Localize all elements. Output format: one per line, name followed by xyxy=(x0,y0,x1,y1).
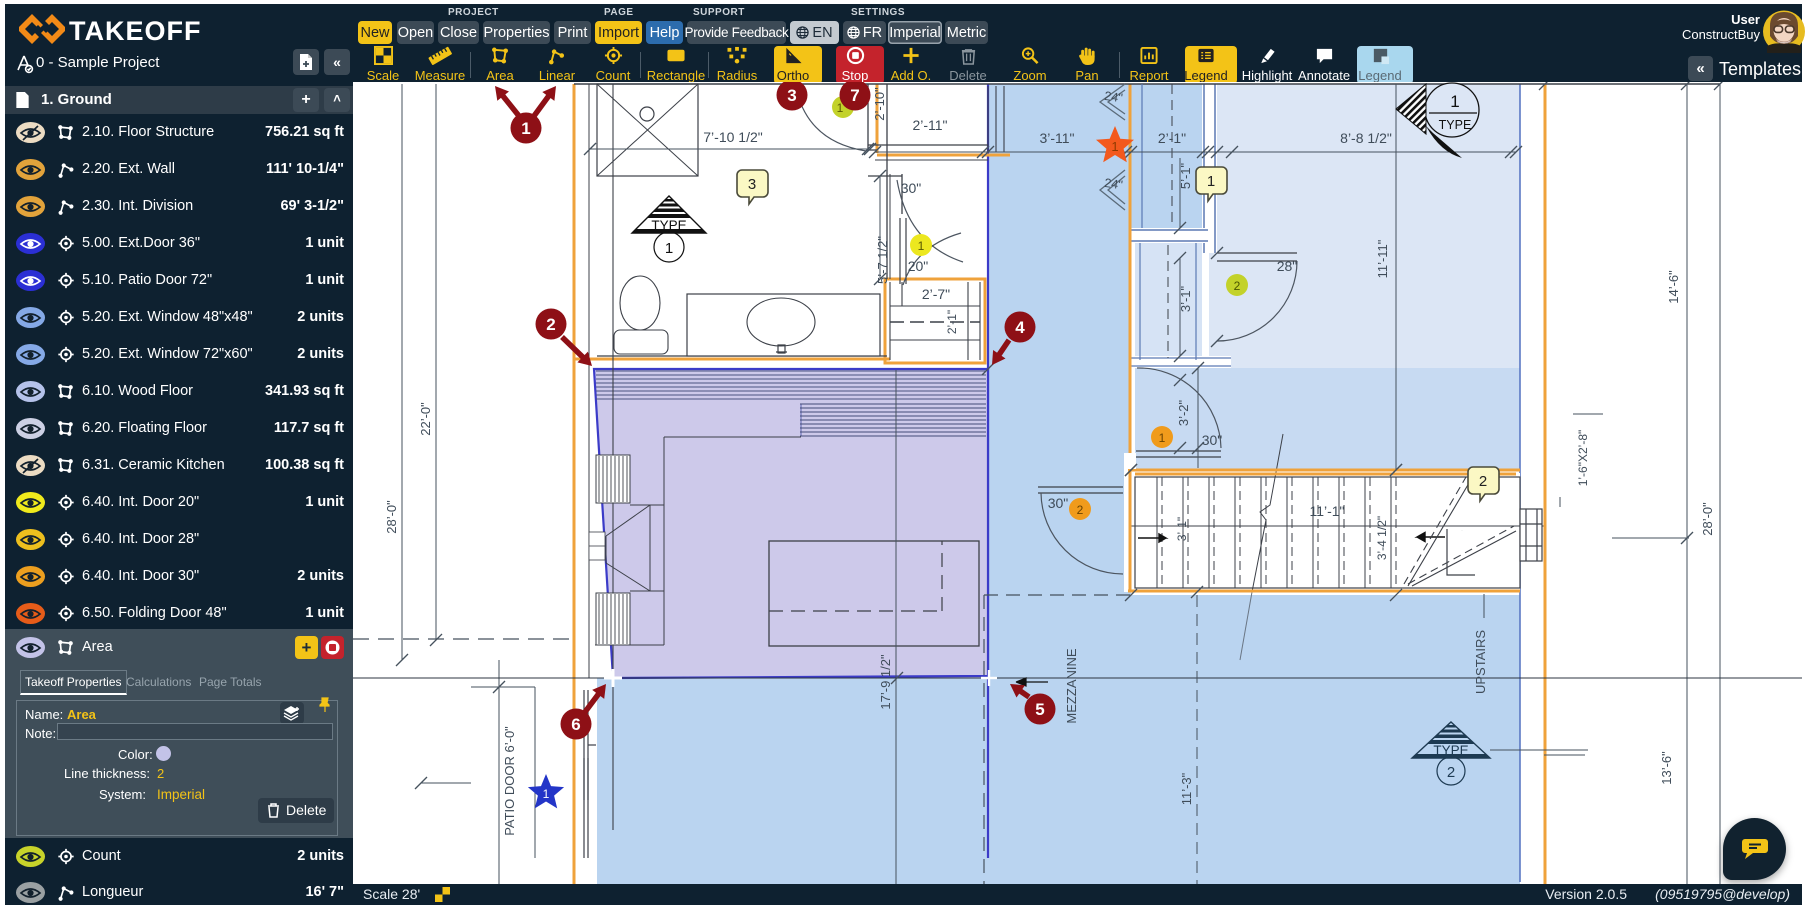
svg-text:3’-1": 3’-1" xyxy=(1178,285,1193,312)
svg-text:TYPE: TYPE xyxy=(1439,118,1472,132)
svg-text:2: 2 xyxy=(1077,503,1084,517)
svg-text:2: 2 xyxy=(546,315,555,334)
svg-text:1: 1 xyxy=(918,239,925,253)
svg-text:24": 24" xyxy=(1103,176,1123,192)
svg-text:3: 3 xyxy=(748,176,756,193)
svg-text:2’-7": 2’-7" xyxy=(922,286,950,302)
svg-text:11’-1": 11’-1" xyxy=(1309,503,1344,519)
svg-text:PATIO DOOR 6’-0": PATIO DOOR 6’-0" xyxy=(502,726,517,836)
svg-text:8’-8 1/2": 8’-8 1/2" xyxy=(1340,130,1392,146)
svg-text:30": 30" xyxy=(1202,432,1223,448)
svg-text:30": 30" xyxy=(901,180,922,196)
svg-text:2’-1": 2’-1" xyxy=(945,310,959,334)
svg-text:1’-6"X2’-8": 1’-6"X2’-8" xyxy=(1576,430,1590,487)
svg-text:28’-0": 28’-0" xyxy=(384,500,399,534)
svg-text:1: 1 xyxy=(665,240,673,257)
svg-text:1: 1 xyxy=(1159,431,1166,445)
svg-text:7’-10 1/2": 7’-10 1/2" xyxy=(703,129,762,145)
svg-text:17’-9 1/2": 17’-9 1/2" xyxy=(878,654,893,710)
svg-text:6: 6 xyxy=(571,715,580,734)
svg-text:1: 1 xyxy=(1207,173,1215,190)
svg-text:1: 1 xyxy=(521,119,530,138)
svg-text:13’-6": 13’-6" xyxy=(1659,751,1674,785)
svg-text:5’-1": 5’-1" xyxy=(1178,162,1193,189)
svg-text:MEZZANINE: MEZZANINE xyxy=(1064,648,1079,723)
svg-text:24": 24" xyxy=(1103,89,1123,105)
svg-text:3’-4 1/2": 3’-4 1/2" xyxy=(1375,516,1389,560)
svg-text:7: 7 xyxy=(850,86,859,105)
svg-text:4: 4 xyxy=(1015,318,1025,337)
svg-text:28": 28" xyxy=(1277,258,1298,274)
svg-text:TYPE: TYPE xyxy=(1433,743,1468,758)
svg-text:11’-11": 11’-11" xyxy=(1375,239,1390,278)
svg-text:5: 5 xyxy=(1035,700,1044,719)
svg-text:3’-2": 3’-2" xyxy=(1176,399,1191,426)
svg-text:2’-10": 2’-10" xyxy=(872,87,887,121)
svg-text:2: 2 xyxy=(1479,473,1487,490)
svg-text:3’-11": 3’-11" xyxy=(1039,130,1074,146)
svg-text:3’-1": 3’-1" xyxy=(1175,517,1189,541)
svg-text:2’-1": 2’-1" xyxy=(1158,130,1186,146)
svg-text:20": 20" xyxy=(908,258,929,274)
svg-text:1: 1 xyxy=(1450,92,1459,111)
svg-text:22’-0": 22’-0" xyxy=(418,402,433,436)
svg-text:30": 30" xyxy=(1048,495,1069,511)
svg-text:UPSTAIRS: UPSTAIRS xyxy=(1473,630,1488,694)
svg-text:2’-11": 2’-11" xyxy=(912,117,947,133)
svg-text:5’-7 1/2": 5’-7 1/2" xyxy=(875,236,890,284)
svg-text:14’-6": 14’-6" xyxy=(1666,270,1681,304)
svg-text:1: 1 xyxy=(1111,139,1118,154)
svg-text:11’-3": 11’-3" xyxy=(1179,772,1194,805)
svg-text:TYPE: TYPE xyxy=(651,218,686,233)
svg-text:1: 1 xyxy=(543,787,550,801)
svg-text:2: 2 xyxy=(1447,764,1455,781)
svg-text:2: 2 xyxy=(1234,279,1241,293)
svg-text:3: 3 xyxy=(787,86,796,105)
svg-text:28’-0": 28’-0" xyxy=(1700,502,1715,536)
